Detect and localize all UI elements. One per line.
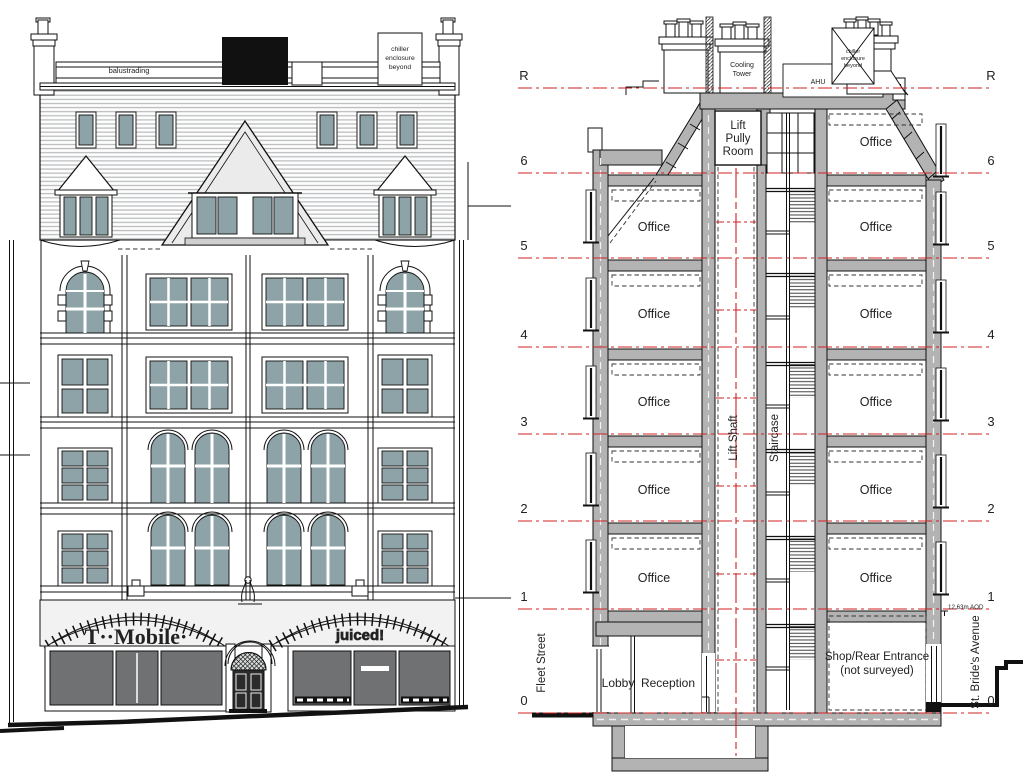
rooftop-plant-outline: [292, 62, 322, 85]
left-roof-chimney: [659, 17, 713, 93]
datum-label: 12.63m AOD: [948, 604, 984, 611]
office-label: Office: [638, 220, 670, 234]
lobby-label: Lobby: [602, 676, 635, 690]
level-label-right-6: 6: [987, 153, 994, 168]
level-label-left-5: 5: [520, 238, 527, 253]
level-label-right-2: 2: [987, 501, 994, 516]
tmobile-sign: T··Mobile·: [85, 624, 188, 649]
balustrading-label: balustrading: [109, 66, 150, 75]
core-wall-right: [815, 109, 827, 713]
tmobile-shopfront: [45, 646, 227, 711]
lift-pit: [612, 726, 768, 771]
level-label-right-1: 1: [987, 589, 994, 604]
office-label: Office: [638, 571, 670, 585]
lift-pully-room-label-1: Lift: [730, 120, 746, 132]
third-floor-windows: [58, 261, 432, 333]
office-label: Office: [860, 571, 892, 585]
first-floor-windows: [58, 430, 432, 503]
left-gutter-roof: [600, 150, 662, 165]
architectural-drawing-sheet: balustrading chiller enclosure beyond T·…: [0, 0, 1023, 772]
level-label-right-3: 3: [987, 414, 994, 429]
chiller-note-line2: enclosure: [385, 55, 415, 62]
level-label-left-1: 1: [520, 589, 527, 604]
staircase-label: Staircase: [769, 414, 781, 462]
office-label: Office: [860, 135, 892, 149]
cross-section: R 6 5 4 3 2 1 0 R 6 5 4 3 2 1 0 Office O…: [518, 17, 1023, 771]
rooftop-note-line3: beyond: [844, 63, 862, 69]
entrance-doors: [233, 670, 264, 712]
level-label-left-0: 0: [520, 693, 527, 708]
rooftop-note-line2: enclosure: [841, 56, 865, 62]
shop-rear-entrance-line2: (not surveyed): [840, 665, 914, 677]
chiller-note-line1: chiller: [391, 46, 409, 53]
office-label: Office: [638, 395, 670, 409]
juiced-sign: juiced!: [335, 627, 384, 644]
stair-flights: [790, 190, 815, 660]
office-label: Office: [860, 307, 892, 321]
level-label-left-6: 6: [520, 153, 527, 168]
level-label-right-0: 0: [987, 693, 994, 708]
level-label-left-R: R: [519, 68, 528, 83]
office-label: Office: [638, 307, 670, 321]
office-label: Office: [860, 220, 892, 234]
front-elevation: balustrading chiller enclosure beyond T·…: [0, 18, 511, 731]
lift-pully-room-label-2: Pully: [726, 133, 751, 145]
mezzanine-windows: [58, 512, 432, 586]
office-label: Office: [860, 483, 892, 497]
right-roof-slope: [886, 100, 944, 187]
ground-bulkhead: [596, 622, 702, 636]
core-wall-mid: [757, 165, 766, 713]
lift-shaft-label: Lift Shaft: [728, 415, 740, 461]
lift-shaft-centerline: [716, 168, 756, 756]
lift-pully-room-label-3: Room: [723, 146, 754, 158]
reception-label: Reception: [641, 676, 695, 690]
fleet-street-label: Fleet Street: [536, 632, 548, 692]
shop-not-surveyed-outline: [829, 616, 926, 710]
cooling-tower: [715, 17, 771, 93]
level-label-left-3: 3: [520, 414, 527, 429]
second-floor-windows: [58, 355, 432, 417]
staircase: [766, 113, 815, 710]
office-label: Office: [860, 395, 892, 409]
rooftop-plant: [626, 17, 908, 97]
juiced-door: [354, 651, 396, 705]
level-label-right-5: 5: [987, 238, 994, 253]
rooftop-note-line1: chiller: [846, 49, 861, 55]
level-label-right-4: 4: [987, 327, 994, 342]
left-parapet: [588, 128, 602, 152]
ahu-label: AHU: [811, 79, 826, 86]
datum-marker: [941, 611, 948, 616]
rooftop-plant-box: [222, 37, 288, 85]
level-label-left-2: 2: [520, 501, 527, 516]
cooling-tower-label-1: Cooling: [730, 62, 754, 69]
office-label: Office: [638, 483, 670, 497]
st-brides-avenue-label: St. Bride's Avenue: [970, 615, 982, 708]
shop-rear-entrance-line1: Shop/Rear Entrance: [825, 651, 929, 663]
cooling-tower-label-2: Tower: [733, 71, 752, 78]
level-label-right-R: R: [986, 68, 995, 83]
level-label-left-4: 4: [520, 327, 527, 342]
chiller-note-line3: beyond: [389, 64, 412, 71]
juiced-shopfront: [288, 646, 455, 711]
